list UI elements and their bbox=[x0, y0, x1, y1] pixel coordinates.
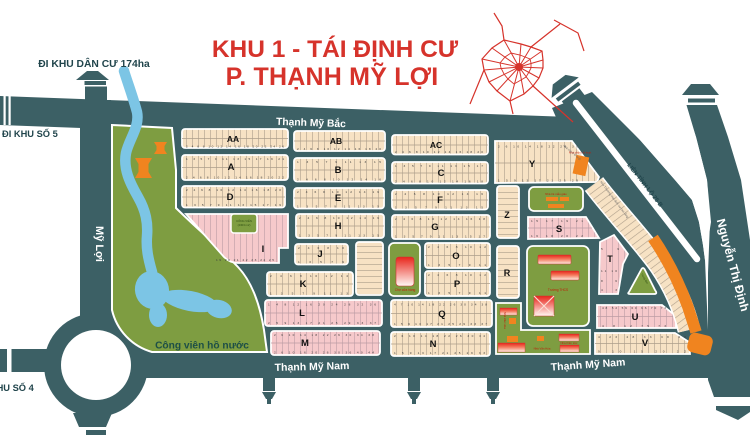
svg-text:2 4 6 8 10 12 14 16 18: 2 4 6 8 10 12 14 16 18 bbox=[395, 180, 483, 184]
svg-text:C: C bbox=[438, 168, 445, 179]
svg-text:A: A bbox=[228, 162, 235, 173]
svg-text:Trường THCS: Trường THCS bbox=[548, 288, 568, 292]
svg-text:N: N bbox=[430, 339, 437, 350]
svg-text:ĐI KHU SỐ 4: ĐI KHU SỐ 4 bbox=[0, 382, 35, 393]
svg-text:P. THẠNH MỸ LỢI: P. THẠNH MỸ LỢI bbox=[226, 61, 439, 91]
svg-text:AC: AC bbox=[430, 140, 442, 150]
svg-text:I: I bbox=[262, 244, 265, 255]
svg-text:J: J bbox=[317, 249, 322, 260]
svg-text:P: P bbox=[454, 279, 461, 290]
svg-text:U: U bbox=[632, 312, 639, 323]
svg-text:Y: Y bbox=[529, 159, 536, 170]
svg-text:D: D bbox=[227, 192, 234, 203]
svg-text:V: V bbox=[642, 338, 649, 349]
svg-text:AB: AB bbox=[330, 136, 342, 146]
svg-text:Nhà Kiến trúc: Nhà Kiến trúc bbox=[561, 341, 579, 345]
svg-text:K: K bbox=[300, 279, 307, 290]
svg-text:(4303 m2): (4303 m2) bbox=[238, 223, 251, 227]
svg-text:2 4 6 8 10 12 14 16 18 20: 2 4 6 8 10 12 14 16 18 20 bbox=[186, 188, 281, 192]
svg-text:2 4 6 8 10 12 14 16 18 20 22 2: 2 4 6 8 10 12 14 16 18 20 22 24 26 bbox=[186, 145, 284, 149]
svg-text:Q: Q bbox=[438, 309, 445, 320]
svg-text:L: L bbox=[299, 308, 305, 319]
svg-text:H: H bbox=[335, 221, 342, 232]
svg-text:Nhà Văn Hóa: Nhà Văn Hóa bbox=[503, 312, 507, 329]
svg-text:2 4 6 8 10 12 14 16 18 20: 2 4 6 8 10 12 14 16 18 20 bbox=[395, 150, 483, 154]
svg-text:E: E bbox=[335, 193, 341, 204]
svg-text:KHU 1 - TÁI ĐỊNH CƯ: KHU 1 - TÁI ĐỊNH CƯ bbox=[212, 35, 459, 63]
svg-text:ĐI KHU DÂN CƯ 174ha: ĐI KHU DÂN CƯ 174ha bbox=[38, 57, 150, 70]
svg-text:B: B bbox=[335, 165, 342, 176]
svg-text:Nhà Văn Hóa: Nhà Văn Hóa bbox=[534, 347, 551, 351]
svg-text:Z: Z bbox=[504, 210, 510, 220]
svg-text:ĐI KHU SỐ 5: ĐI KHU SỐ 5 bbox=[2, 128, 58, 139]
svg-text:R: R bbox=[504, 268, 511, 278]
svg-text:G: G bbox=[431, 222, 438, 233]
svg-text:AA: AA bbox=[227, 134, 239, 144]
svg-text:2 4 6 8 10 12 14 16 18 20: 2 4 6 8 10 12 14 16 18 20 bbox=[297, 147, 381, 151]
svg-text:T: T bbox=[607, 254, 613, 264]
svg-text:1 5 9 13 17 21 25 29 33 37: 1 5 9 13 17 21 25 29 33 37 bbox=[394, 322, 487, 326]
svg-text:Công viên hồ nước: Công viên hồ nước bbox=[155, 340, 249, 352]
svg-text:Nhà trẻ mẫu giáo: Nhà trẻ mẫu giáo bbox=[545, 191, 567, 196]
svg-text:Mỹ Lợi: Mỹ Lợi bbox=[93, 226, 105, 262]
svg-text:O: O bbox=[452, 251, 459, 262]
svg-text:Chợ cửa hàng: Chợ cửa hàng bbox=[395, 288, 416, 292]
svg-text:F: F bbox=[437, 195, 443, 206]
svg-text:M: M bbox=[301, 338, 309, 349]
svg-text:Thạnh Mỹ Nam: Thạnh Mỹ Nam bbox=[275, 360, 350, 374]
svg-text:2 4 6 8 10 12 14 16 18: 2 4 6 8 10 12 14 16 18 bbox=[395, 217, 485, 221]
